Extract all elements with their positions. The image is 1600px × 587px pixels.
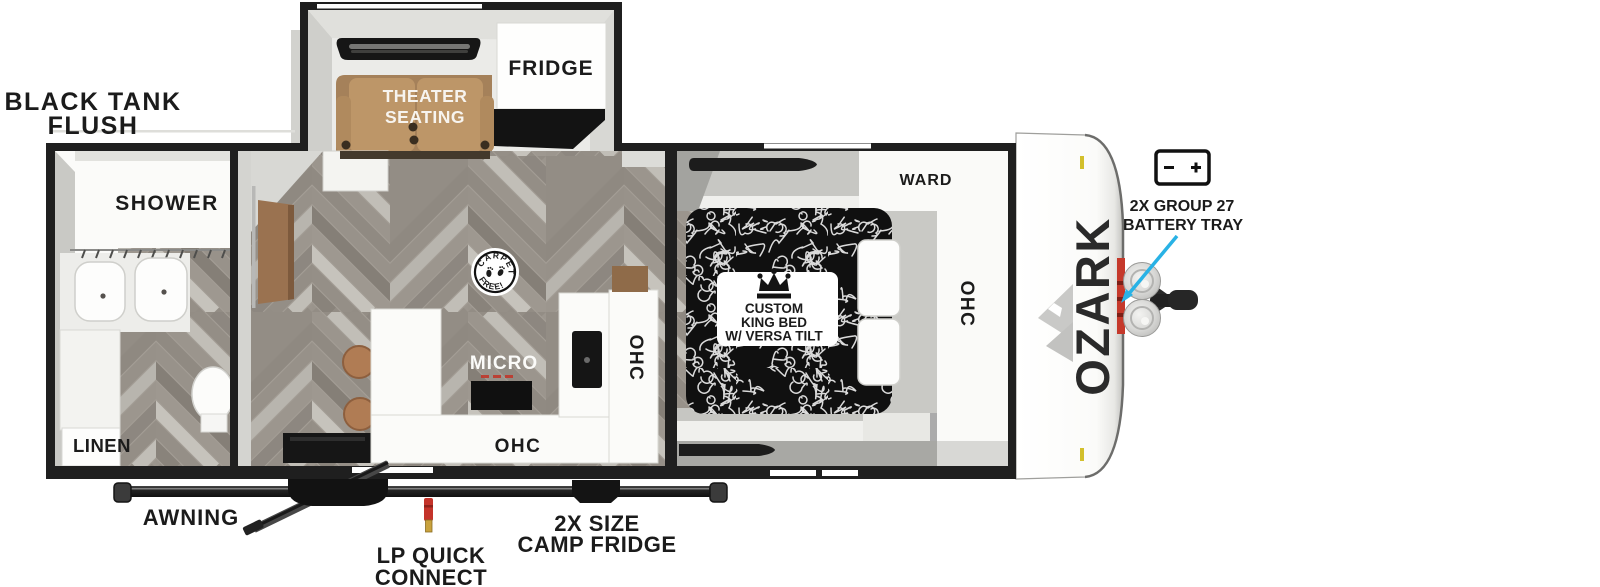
svg-text:WARD: WARD [900,172,953,189]
svg-text:CUSTOM: CUSTOM [745,301,803,316]
svg-text:OHC: OHC [625,335,646,382]
svg-text:FRIDGE: FRIDGE [508,57,593,80]
svg-text:OZARK: OZARK [1066,216,1119,396]
svg-text:OHC: OHC [495,436,542,457]
svg-text:BATTERY TRAY: BATTERY TRAY [1123,217,1243,234]
svg-text:SEATING: SEATING [385,107,465,127]
svg-text:THEATER: THEATER [383,86,468,106]
svg-text:CONNECT: CONNECT [375,565,487,587]
svg-text:2X GROUP 27: 2X GROUP 27 [1130,198,1235,215]
svg-text:MICRO: MICRO [470,353,538,374]
svg-text:CAMP FRIDGE: CAMP FRIDGE [517,532,676,557]
svg-text:LINEN: LINEN [73,435,131,456]
svg-text:FLUSH: FLUSH [48,112,139,140]
svg-text:AWNING: AWNING [143,505,239,530]
svg-text:SHOWER: SHOWER [115,192,219,215]
svg-text:W/ VERSA TILT: W/ VERSA TILT [725,329,823,344]
svg-text:OHC: OHC [956,281,977,328]
